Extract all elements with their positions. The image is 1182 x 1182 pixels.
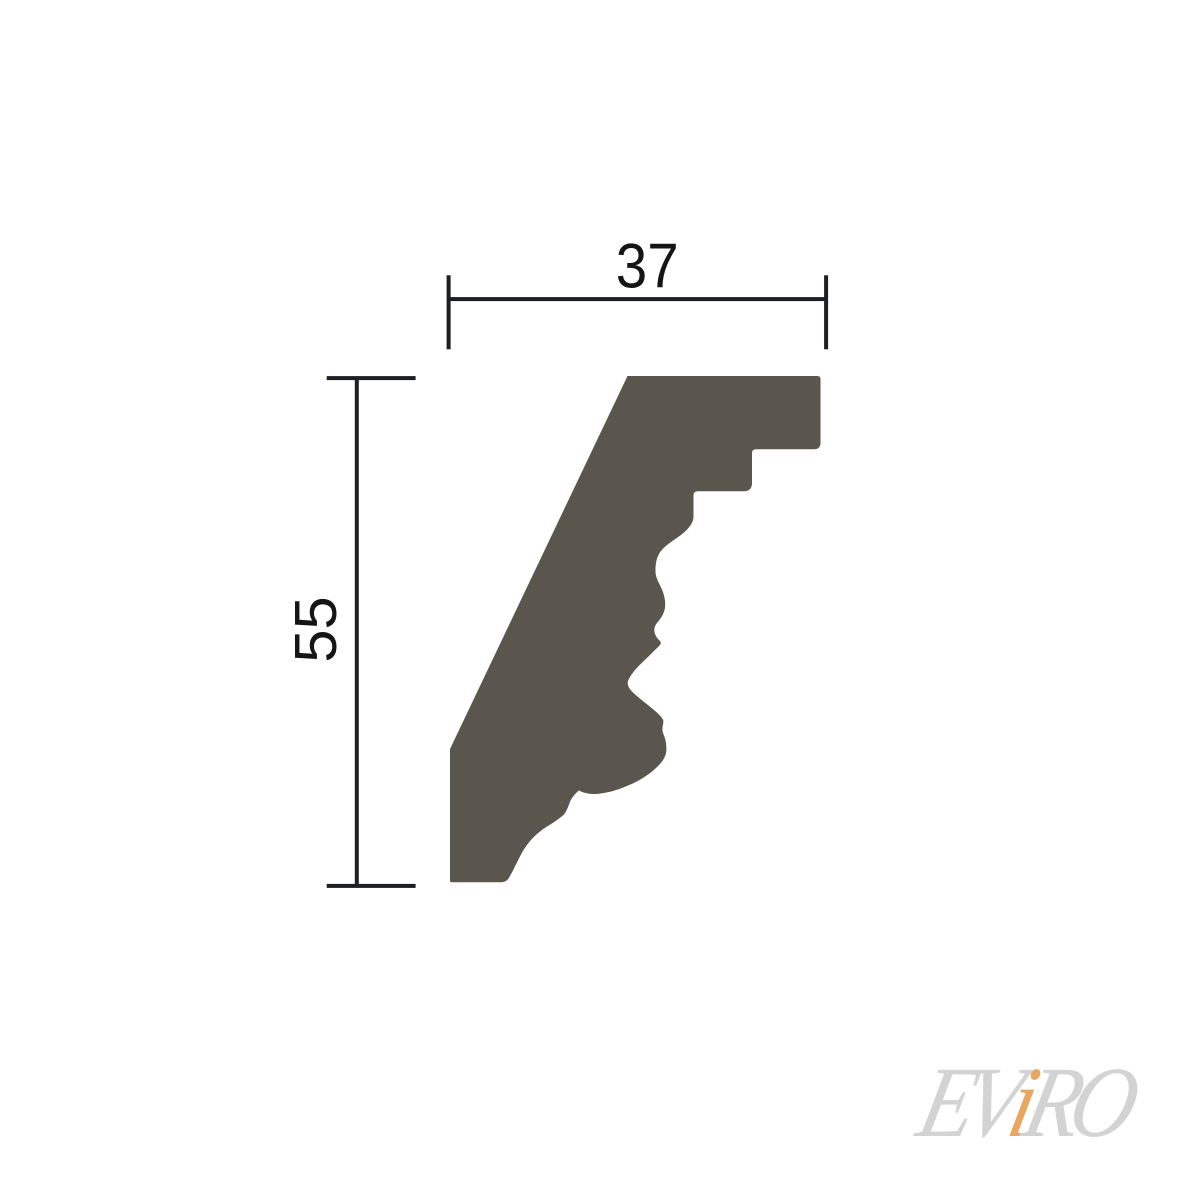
svg-text:55: 55 (282, 596, 349, 662)
svg-text:37: 37 (616, 230, 679, 301)
svg-text:EViRO: EViRO (907, 1046, 1147, 1158)
